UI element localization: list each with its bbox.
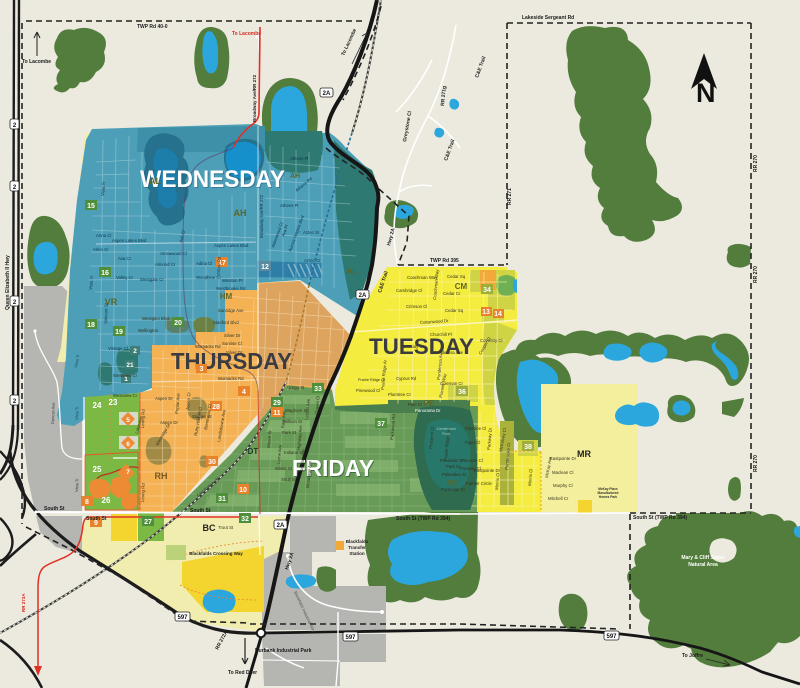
svg-text:Sunrise Cl: Sunrise Cl (222, 341, 242, 346)
svg-text:Stanford Blvd: Stanford Blvd (213, 320, 239, 325)
svg-text:Westbrooke Rd: Westbrooke Rd (216, 286, 246, 291)
svg-text:31: 31 (218, 496, 226, 503)
svg-text:RR 273A: RR 273A (21, 593, 26, 612)
svg-text:Park St: Park St (282, 430, 297, 435)
svg-text:Winston Pl: Winston Pl (222, 278, 243, 283)
svg-text:Duncan Ave: Duncan Ave (50, 402, 56, 424)
svg-text:Pine Cr: Pine Cr (408, 402, 423, 407)
svg-text:Pinewood Cl: Pinewood Cl (356, 388, 380, 393)
svg-text:Station: Station (349, 551, 365, 556)
svg-text:AH: AH (234, 208, 247, 218)
svg-text:8: 8 (85, 499, 89, 506)
svg-text:AL: AL (149, 176, 161, 186)
svg-text:DT: DT (248, 447, 259, 456)
svg-text:Athens Pl: Athens Pl (280, 203, 298, 208)
svg-text:Adina Cl: Adina Cl (196, 261, 212, 266)
svg-text:597: 597 (177, 615, 188, 621)
svg-text:27: 27 (144, 519, 152, 526)
svg-text:5: 5 (126, 417, 130, 424)
svg-text:Piper Cl: Piper Cl (465, 440, 480, 445)
svg-text:2: 2 (133, 348, 137, 355)
svg-text:Sunridge Ave: Sunridge Ave (218, 308, 244, 313)
svg-text:N: N (696, 78, 716, 108)
svg-text:Crimson Cl: Crimson Cl (406, 304, 427, 309)
svg-text:16: 16 (101, 270, 109, 277)
svg-text:HM: HM (220, 292, 233, 301)
svg-text:30: 30 (208, 459, 216, 466)
svg-text:AH: AH (290, 173, 300, 180)
svg-text:23: 23 (109, 398, 118, 407)
svg-text:Wellington: Wellington (138, 328, 159, 333)
svg-text:Silver Dr: Silver Dr (226, 350, 243, 355)
svg-text:RR 270: RR 270 (753, 266, 759, 283)
svg-text:Arrowwood Cl: Arrowwood Cl (160, 251, 187, 256)
svg-text:Mitchell Cr: Mitchell Cr (548, 496, 569, 501)
svg-text:25: 25 (93, 465, 102, 474)
svg-text:18: 18 (87, 322, 95, 329)
svg-text:South St: South St (86, 516, 107, 522)
svg-text:Willow Rd: Willow Rd (216, 256, 222, 276)
svg-text:Womacks Rd: Womacks Rd (218, 376, 244, 381)
svg-text:21: 21 (126, 362, 134, 369)
svg-text:Anna Cl: Anna Cl (96, 233, 111, 238)
svg-text:Eastpointe Dr: Eastpointe Dr (550, 456, 577, 461)
svg-text:Cyprus Rd: Cyprus Rd (396, 376, 417, 381)
svg-text:RH: RH (155, 471, 168, 481)
svg-text:PE: PE (424, 399, 435, 408)
svg-text:Westgate Cr: Westgate Cr (140, 277, 164, 282)
svg-text:Cedar Cr: Cedar Cr (443, 291, 461, 296)
svg-text:Willson St: Willson St (283, 419, 303, 424)
svg-text:Churchill Pl: Churchill Pl (430, 332, 452, 337)
svg-text:Winks St: Winks St (275, 466, 293, 471)
svg-text:20: 20 (174, 320, 182, 327)
svg-text:29: 29 (273, 400, 281, 407)
svg-text:RR 271: RR 271 (507, 188, 513, 205)
svg-text:7: 7 (126, 469, 130, 476)
svg-text:Queen Elizabeth II Hwy: Queen Elizabeth II Hwy (5, 255, 11, 310)
svg-text:Leung Rd: Leung Rd (140, 483, 146, 502)
svg-text:MR: MR (577, 449, 591, 459)
svg-text:11: 11 (273, 410, 281, 417)
svg-text:12: 12 (261, 264, 269, 271)
svg-text:Gregg St: Gregg St (287, 385, 305, 390)
svg-text:2A: 2A (277, 523, 285, 529)
svg-text:BC: BC (203, 523, 216, 533)
svg-text:Pinetree Cl: Pinetree Cl (465, 426, 486, 431)
svg-text:South St (TWP Rd 394): South St (TWP Rd 394) (396, 516, 450, 522)
svg-text:4: 4 (242, 389, 246, 396)
svg-text:AL: AL (347, 267, 358, 276)
svg-text:34: 34 (483, 287, 491, 294)
svg-text:Westview Cr: Westview Cr (113, 373, 138, 378)
svg-text:To Lacombe: To Lacombe (22, 59, 51, 65)
svg-text:Park: Park (442, 431, 451, 436)
svg-text:Aspen Lakes Blvd: Aspen Lakes Blvd (112, 238, 147, 243)
svg-text:Womacks Rd: Womacks Rd (195, 344, 221, 349)
svg-text:TWP Rd 395: TWP Rd 395 (430, 258, 459, 264)
svg-text:Burbank Industrial Park: Burbank Industrial Park (255, 648, 312, 654)
svg-text:24: 24 (93, 401, 102, 410)
svg-text:Maclean Cl: Maclean Cl (552, 470, 574, 475)
svg-text:Aspen Lakes Blvd: Aspen Lakes Blvd (214, 243, 249, 248)
svg-text:Parkridge Cr: Parkridge Cr (441, 487, 466, 492)
svg-text:13: 13 (482, 309, 490, 316)
svg-text:Cassidy Ct: Cassidy Ct (403, 344, 425, 349)
svg-text:RR 270: RR 270 (753, 455, 759, 472)
svg-text:36: 36 (458, 389, 466, 396)
svg-text:Silver Dr: Silver Dr (224, 333, 241, 338)
svg-text:Palmer Circle: Palmer Circle (466, 481, 492, 486)
svg-text:RR 270: RR 270 (753, 155, 759, 172)
svg-text:South St: South St (190, 508, 211, 514)
svg-text:14: 14 (494, 311, 502, 318)
svg-text:Transfer: Transfer (348, 545, 366, 550)
svg-text:Cedar Sq: Cedar Sq (445, 308, 464, 313)
svg-text:Valmont St: Valmont St (103, 302, 109, 324)
svg-text:Valley Cr: Valley Cr (116, 275, 134, 280)
svg-text:Panorama Dr: Panorama Dr (415, 408, 441, 413)
svg-text:Westglen Blvd: Westglen Blvd (142, 316, 170, 321)
svg-text:Blackfalds Crossing Way: Blackfalds Crossing Way (189, 551, 243, 556)
svg-text:To Red Deer: To Red Deer (228, 670, 257, 676)
svg-text:To Joffre: To Joffre (682, 653, 703, 659)
svg-text:Homes Park: Homes Park (599, 495, 618, 499)
svg-text:28: 28 (212, 404, 220, 411)
svg-text:2A: 2A (359, 293, 367, 299)
svg-text:Vintage Cl: Vintage Cl (108, 346, 128, 351)
svg-text:South St (TWP Rd 394): South St (TWP Rd 394) (633, 515, 687, 521)
svg-text:3: 3 (200, 366, 204, 373)
svg-text:Blackfalds: Blackfalds (346, 539, 369, 544)
svg-text:Ava Cr: Ava Cr (118, 256, 132, 261)
svg-text:Shull St: Shull St (281, 477, 297, 482)
svg-text:Aspen Dr: Aspen Dr (155, 396, 173, 401)
svg-text:Arlen Cl: Arlen Cl (93, 247, 108, 252)
svg-text:Westview Cr: Westview Cr (113, 393, 138, 398)
svg-text:Broadway Ave/RR 272: Broadway Ave/RR 272 (259, 194, 264, 238)
svg-text:Murphy Cl: Murphy Cl (553, 483, 573, 488)
svg-text:32: 32 (241, 516, 249, 523)
svg-text:6: 6 (126, 441, 130, 448)
svg-text:Almond Cr: Almond Cr (155, 262, 176, 267)
svg-text:Cambridge Cl: Cambridge Cl (396, 288, 422, 293)
svg-text:37: 37 (377, 421, 385, 428)
svg-text:To Lacombe: To Lacombe (232, 31, 261, 37)
svg-text:WEDNESDAY: WEDNESDAY (140, 166, 285, 193)
svg-text:597: 597 (606, 634, 617, 640)
svg-text:Broadway Ave/RR 272: Broadway Ave/RR 272 (252, 74, 257, 122)
svg-text:Vista Tr: Vista Tr (74, 406, 79, 420)
svg-text:Park St: Park St (446, 464, 461, 469)
svg-text:South St: South St (44, 506, 65, 512)
svg-text:26: 26 (102, 496, 111, 505)
svg-text:Athens Pl: Athens Pl (290, 156, 308, 161)
svg-text:Natural Area: Natural Area (688, 562, 718, 568)
svg-text:Vista Tr: Vista Tr (74, 478, 79, 492)
svg-text:Mary & Cliff Soper: Mary & Cliff Soper (681, 555, 724, 561)
svg-text:Lakeside Sergeant Rd: Lakeside Sergeant Rd (522, 15, 574, 21)
svg-text:TWP Rd 40-0: TWP Rd 40-0 (137, 24, 168, 30)
svg-text:Cedar Sq: Cedar Sq (447, 274, 466, 279)
svg-text:CM: CM (455, 282, 468, 291)
svg-text:597: 597 (345, 635, 356, 641)
svg-text:Aztec St: Aztec St (303, 230, 320, 235)
svg-text:Trout St: Trout St (218, 525, 234, 530)
svg-text:2A: 2A (323, 91, 331, 97)
svg-text:Pinnacle Cl: Pinnacle Cl (461, 458, 483, 463)
svg-text:19: 19 (115, 329, 123, 336)
svg-text:15: 15 (87, 203, 95, 210)
svg-text:Plumtree Cr: Plumtree Cr (388, 392, 411, 397)
svg-text:33: 33 (314, 386, 322, 393)
svg-text:Palisades St: Palisades St (442, 472, 467, 477)
svg-text:Aztec Cr: Aztec Cr (304, 258, 321, 263)
svg-text:Portway Cl: Portway Cl (460, 466, 481, 471)
svg-text:10: 10 (239, 487, 247, 494)
svg-text:38: 38 (524, 444, 532, 451)
